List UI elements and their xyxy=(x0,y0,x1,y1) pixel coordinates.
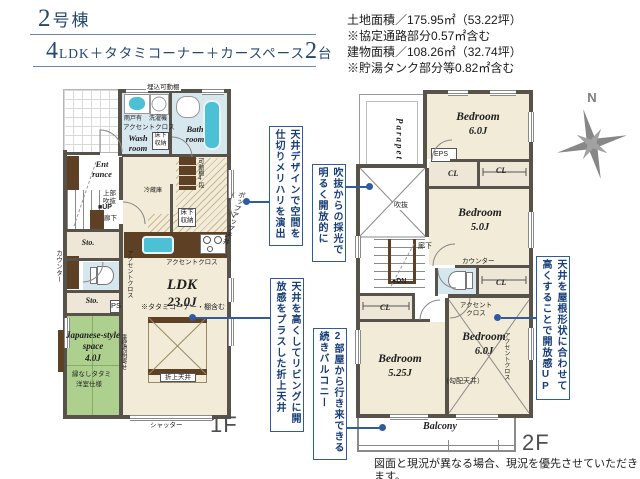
callout-connector xyxy=(196,317,270,319)
building-suffix: 号棟 xyxy=(53,11,91,30)
room-label-bath: Bath room xyxy=(180,125,210,145)
bath-vanity xyxy=(176,96,200,118)
label-amado: 雨戸有 xyxy=(124,116,142,123)
callout-connector xyxy=(345,427,383,429)
balcony-tick xyxy=(498,440,499,452)
wall xyxy=(119,157,123,200)
wall xyxy=(63,313,122,316)
callout-dot xyxy=(366,183,373,190)
floor2-label: 2F xyxy=(522,430,550,455)
plan-suffix: 台 xyxy=(318,46,333,61)
label-accent-kitchen: アクセントクロス xyxy=(166,259,218,266)
stair-step-block xyxy=(90,210,104,229)
label-eps: EPS xyxy=(434,151,448,159)
bedroom-mid-name: Bedroom xyxy=(448,206,512,221)
window xyxy=(456,414,498,420)
window xyxy=(228,278,234,302)
site-info-line: 建物面積／108.26㎡（32.74坪） xyxy=(347,44,522,60)
window xyxy=(528,328,534,360)
label-underfloor-kitchen: 床下収納 xyxy=(178,208,196,227)
label-counter-2f: カウンター xyxy=(462,258,495,265)
bedroom-top-name: Bedroom xyxy=(446,110,510,125)
room-label-storage2: Sto. xyxy=(80,296,104,305)
toilet-2f-bowl xyxy=(448,271,466,290)
wall xyxy=(118,89,122,156)
pantry-shelf xyxy=(179,156,196,190)
label-void: 吹抜 xyxy=(393,202,409,210)
window xyxy=(130,415,212,421)
label-dn: ●DN xyxy=(392,278,406,286)
title-divider-top xyxy=(30,34,316,35)
wall xyxy=(170,184,173,232)
toilet-1f-tank xyxy=(90,267,97,284)
site-info-line: ※協定通路部分0.57㎡含む xyxy=(347,28,522,44)
label-up: ■UP xyxy=(98,204,112,212)
shoe-cabinet xyxy=(67,156,79,190)
room-porch xyxy=(63,89,120,153)
parapet-inner-line xyxy=(366,101,418,166)
site-info-line: ※貯湯タンク部分等0.82㎡含む xyxy=(347,60,522,76)
window xyxy=(448,90,468,96)
room-label-bedroom-bl: Bedroom 5.25J xyxy=(368,352,432,381)
compass-n-icon: N xyxy=(587,90,596,105)
plan-num1: 4 xyxy=(46,38,59,64)
wall xyxy=(477,162,480,189)
label-tatami-note1: 縁なしタタミ xyxy=(72,371,111,378)
wall xyxy=(445,298,449,415)
window xyxy=(390,414,428,420)
toilet-1f-bowl xyxy=(97,266,114,285)
title-divider-bottom xyxy=(33,66,316,67)
label-tatami-note2: 洋室仕様 xyxy=(76,381,102,388)
label-umekomi-shelf: 埋込可動棚 xyxy=(146,84,181,91)
window xyxy=(528,112,534,142)
label-fridge: 冷蔵庫 xyxy=(144,188,162,195)
floorplan-sheet: 2号棟 4LDK＋タタミコーナー＋カースペース2台 土地面積／175.95㎡（5… xyxy=(0,0,640,479)
japanese-room-size: 4.0J xyxy=(64,353,122,364)
label-washer: 洗濯機 xyxy=(149,116,167,123)
wall xyxy=(435,268,438,296)
label-accent-2f-b: アクセントクロス xyxy=(502,332,509,380)
wall xyxy=(63,229,122,232)
label-accent-wash: アクセントクロス xyxy=(123,124,175,131)
washing-machine xyxy=(150,94,169,115)
wall xyxy=(63,150,67,419)
japanese-room-name: Japanese-style space xyxy=(64,330,122,353)
plan-num2: 2 xyxy=(305,38,318,64)
ldk-name: LDK xyxy=(150,276,214,294)
label-accent-2f-a: アクセントクロス xyxy=(458,302,494,319)
room-label-entrance: Ent rance xyxy=(86,160,118,180)
window xyxy=(528,212,534,248)
wall xyxy=(356,293,415,296)
callout-void-light: 吹抜からの採光で明るく開放的に xyxy=(312,164,346,262)
wall xyxy=(169,89,172,155)
site-info: 土地面積／175.95㎡（53.22坪） ※協定通路部分0.57㎡含む 建物面積… xyxy=(347,12,522,76)
label-cl3: CL xyxy=(380,303,390,312)
wall xyxy=(356,319,430,322)
bedroom-top-size: 6.0J xyxy=(446,125,510,139)
callout-dot xyxy=(189,314,196,321)
room-label-wash: Wash room xyxy=(123,134,153,154)
wall xyxy=(122,154,231,157)
site-info-line: 土地面積／175.95㎡（53.22坪） xyxy=(347,12,522,28)
wall xyxy=(63,258,122,261)
kitchen-sink xyxy=(142,236,174,254)
tatami-grid-h xyxy=(67,365,119,366)
label-cl1: CL xyxy=(448,169,458,178)
label-counter-1f: カウンター xyxy=(54,250,61,283)
washbasin-bowl xyxy=(129,97,145,110)
wall xyxy=(227,89,231,419)
callout-dot xyxy=(243,198,250,205)
wall xyxy=(423,90,533,94)
window xyxy=(490,90,516,96)
window xyxy=(126,89,148,95)
wall xyxy=(119,224,123,415)
room-label-storage1: Sto. xyxy=(76,238,100,247)
label-underfloor-wash: 床下収納 xyxy=(152,132,169,150)
wall xyxy=(450,159,533,162)
label-accent-wall: アクセントクロス xyxy=(125,250,132,298)
label-parapet: Parapet xyxy=(394,118,404,161)
building-number: 2 xyxy=(38,5,53,32)
bedroom-mid-size: 5.0J xyxy=(448,221,512,235)
plan-title: 4LDK＋タタミコーナー＋カースペース2台 xyxy=(46,38,332,66)
window xyxy=(228,170,234,198)
window xyxy=(355,330,361,364)
window xyxy=(355,236,361,258)
callout-continuous-balcony: 2部屋から行き来できる続きバルコニー xyxy=(313,328,347,460)
label-balcony: Balcony xyxy=(412,421,468,433)
building-title: 2号棟 xyxy=(38,5,91,34)
room-label-bedroom-mid: Bedroom 5.0J xyxy=(448,206,512,235)
label-hallway-1f: 廊下 xyxy=(104,215,117,222)
room-label-bedroom-top: Bedroom 6.0J xyxy=(446,110,510,139)
label-tatami-included: ※タタミコーナー・棚含む xyxy=(141,304,225,312)
wall xyxy=(356,164,427,168)
callout-dot xyxy=(494,314,501,321)
wall xyxy=(63,152,100,155)
wall xyxy=(448,294,533,298)
wall xyxy=(423,90,427,168)
room-label-japanese: Japanese-style space 4.0J xyxy=(64,330,122,364)
disclaimer: 図面と現況が異なる場合、現況を優先させていただきます。 xyxy=(374,458,640,479)
label-sloped-ceiling: （勾配天井） xyxy=(442,378,484,386)
callout-ceiling-design: 天井デザインで空間を仕切りメリハリを演出 xyxy=(269,126,303,246)
label-cl2: CL xyxy=(496,166,506,175)
label-tarekabe: 垂壁照明寄せ xyxy=(119,334,126,370)
wall xyxy=(427,186,533,189)
wall xyxy=(63,290,122,293)
callout-connector xyxy=(249,201,269,203)
wall xyxy=(476,268,479,296)
compass: N xyxy=(552,84,632,188)
wall xyxy=(425,168,429,237)
callout-roof-ceiling: 天井を屋根形状に合わせて高くすることで開放感UP xyxy=(536,256,570,400)
bedroom-bl-size: 5.25J xyxy=(368,367,432,381)
toilet-2f-tank xyxy=(466,272,473,289)
plan-mid: LDK＋タタミコーナー＋カースペース xyxy=(59,46,305,61)
callout-connector xyxy=(501,317,536,319)
label-ps: PS xyxy=(111,302,121,311)
label-hallway-2f: 廊下 xyxy=(418,243,432,251)
bedroom-bl-name: Bedroom xyxy=(368,352,432,367)
window xyxy=(202,89,224,95)
balcony-rail-inner xyxy=(357,445,516,446)
callout-dot xyxy=(379,424,386,431)
balcony-tick xyxy=(448,440,449,452)
callout-coffered-ceiling: 天井を高くしてリビングに開放感をプラスした折上天井 xyxy=(270,278,304,432)
label-shutter: シャッター xyxy=(150,422,183,429)
label-cl4: CL xyxy=(496,278,506,287)
floor1-label: 1F xyxy=(210,412,238,437)
label-oriage: 折上天井 xyxy=(160,373,196,382)
window xyxy=(228,318,234,346)
wall xyxy=(356,164,360,418)
label-pantry: 可動棚4段 xyxy=(196,158,203,188)
